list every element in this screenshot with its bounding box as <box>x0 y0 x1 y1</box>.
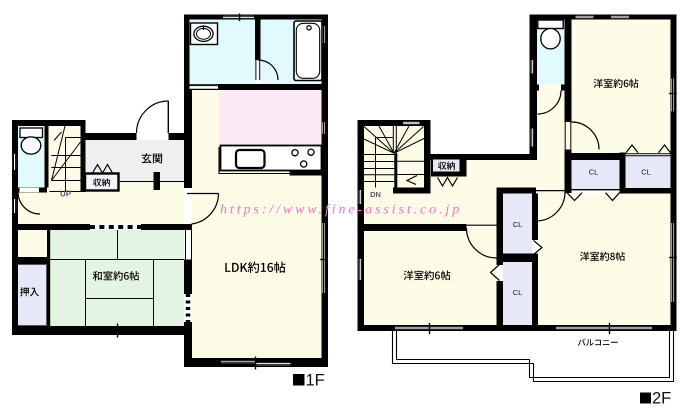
svg-text:DN: DN <box>370 190 381 199</box>
svg-text:UP: UP <box>60 190 72 199</box>
svg-text:CL: CL <box>513 220 523 229</box>
svg-text:1F: 1F <box>306 372 325 390</box>
svg-text:CL: CL <box>513 288 523 297</box>
svg-text:CL: CL <box>589 168 599 177</box>
svg-text:https://www.fine-assist.co.jp: https://www.fine-assist.co.jp <box>220 203 462 218</box>
svg-text:2F: 2F <box>652 390 671 408</box>
svg-text:CL: CL <box>641 168 651 177</box>
